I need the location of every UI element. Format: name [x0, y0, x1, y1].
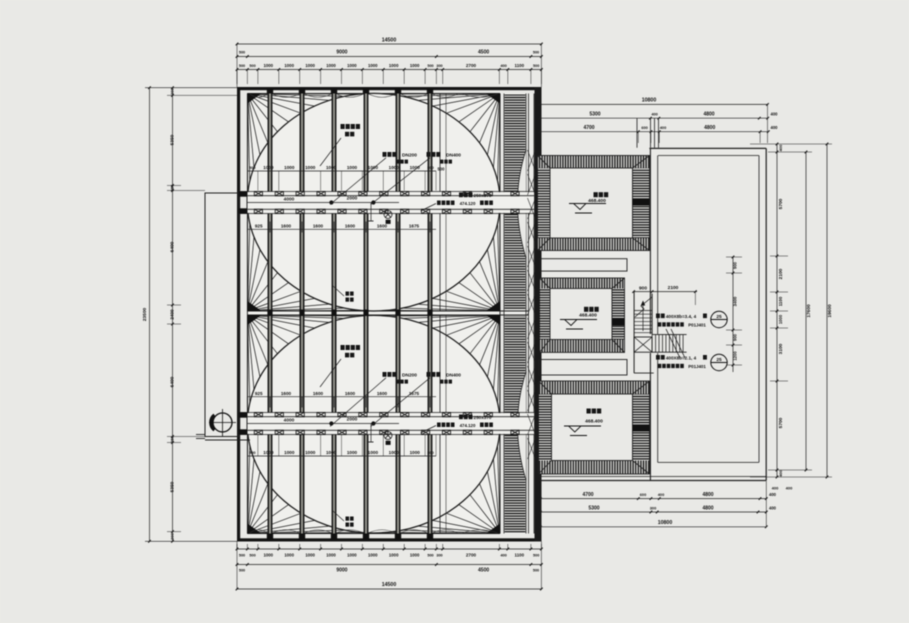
svg-text:1100: 1100 — [515, 553, 525, 558]
svg-text:2700: 2700 — [466, 553, 477, 558]
svg-text:4800: 4800 — [703, 112, 714, 118]
svg-text:5700: 5700 — [778, 198, 784, 209]
svg-text:1000: 1000 — [284, 63, 294, 68]
svg-text:400: 400 — [771, 112, 779, 117]
svg-text:400: 400 — [771, 125, 779, 130]
svg-text:1000: 1000 — [305, 450, 316, 455]
svg-text:900: 900 — [733, 261, 738, 269]
svg-text:500: 500 — [239, 569, 245, 573]
svg-text:500: 500 — [249, 450, 256, 455]
svg-text:5300: 5300 — [589, 112, 600, 118]
svg-text:1000: 1000 — [326, 63, 336, 68]
svg-text:468.400: 468.400 — [585, 419, 603, 425]
svg-text:1000: 1000 — [368, 553, 378, 558]
svg-text:DN200: DN200 — [402, 153, 417, 159]
svg-text:1600: 1600 — [313, 223, 324, 228]
svg-text:1000: 1000 — [284, 450, 295, 455]
svg-text:4800: 4800 — [704, 125, 715, 131]
svg-text:1000: 1000 — [389, 450, 400, 455]
svg-text:2100: 2100 — [668, 285, 679, 291]
svg-text:925: 925 — [255, 223, 263, 228]
svg-text:1000: 1000 — [347, 165, 358, 170]
svg-text:2700: 2700 — [466, 63, 477, 68]
svg-text:900: 900 — [639, 285, 647, 291]
svg-text:DN400: DN400 — [446, 373, 461, 379]
svg-text:DN400: DN400 — [446, 153, 461, 159]
svg-text:1000: 1000 — [410, 450, 421, 455]
svg-text:1600: 1600 — [377, 391, 388, 396]
svg-text:400: 400 — [500, 553, 507, 558]
svg-text:P01J401: P01J401 — [688, 322, 706, 327]
svg-text:3100: 3100 — [778, 343, 784, 354]
svg-text:1000: 1000 — [389, 553, 399, 558]
svg-text:1000: 1000 — [326, 553, 336, 558]
svg-text:1000: 1000 — [326, 450, 337, 455]
svg-text:500: 500 — [533, 64, 539, 68]
svg-text:400: 400 — [500, 63, 507, 68]
svg-text:400: 400 — [769, 492, 777, 497]
svg-text:25: 25 — [716, 314, 722, 320]
svg-text:2000: 2000 — [347, 417, 358, 423]
svg-text:1000: 1000 — [368, 450, 379, 455]
svg-text:400: 400 — [651, 112, 658, 117]
svg-text:500: 500 — [249, 554, 255, 558]
svg-text:250x370: 250x370 — [474, 415, 492, 420]
svg-text:200: 200 — [170, 87, 175, 94]
svg-text:500: 500 — [239, 554, 245, 558]
svg-text:500: 500 — [533, 569, 539, 573]
svg-text:500: 500 — [249, 165, 256, 170]
svg-text:925: 925 — [255, 391, 263, 396]
svg-text:1000: 1000 — [284, 165, 295, 170]
svg-text:500: 500 — [239, 64, 245, 68]
svg-text:200: 200 — [170, 532, 175, 539]
svg-text:1600: 1600 — [281, 223, 292, 228]
svg-text:1675: 1675 — [409, 223, 420, 228]
svg-text:500: 500 — [427, 64, 433, 68]
svg-text:500: 500 — [427, 165, 434, 170]
svg-text:4700: 4700 — [582, 492, 593, 498]
svg-text:500: 500 — [249, 64, 255, 68]
svg-text:23500: 23500 — [142, 308, 148, 322]
svg-text:250x370: 250x370 — [474, 193, 492, 198]
svg-text:400: 400 — [778, 144, 783, 151]
svg-text:4800: 4800 — [702, 492, 713, 498]
svg-text:1000: 1000 — [389, 165, 400, 170]
svg-text:1000: 1000 — [264, 553, 274, 558]
svg-text:1000: 1000 — [778, 314, 783, 324]
svg-text:1000: 1000 — [389, 63, 399, 68]
svg-text:500: 500 — [438, 167, 446, 172]
svg-text:1000: 1000 — [347, 450, 358, 455]
svg-text:500: 500 — [533, 554, 539, 558]
svg-text:400: 400 — [769, 506, 777, 511]
svg-text:1000: 1000 — [305, 165, 316, 170]
svg-text:600: 600 — [641, 125, 648, 130]
svg-text:500: 500 — [533, 51, 539, 55]
svg-text:900: 900 — [733, 333, 738, 341]
svg-text:17600: 17600 — [806, 304, 812, 318]
svg-text:3400: 3400 — [733, 296, 738, 306]
svg-text:468.400: 468.400 — [579, 313, 597, 319]
svg-text:400: 400 — [772, 486, 779, 491]
svg-text:500: 500 — [427, 450, 434, 455]
svg-text:468.400: 468.400 — [588, 198, 606, 204]
svg-text:250: 250 — [170, 184, 175, 191]
svg-text:300: 300 — [436, 64, 442, 68]
svg-text:1100: 1100 — [515, 63, 525, 68]
svg-text:1000: 1000 — [368, 63, 378, 68]
svg-text:4000: 4000 — [284, 196, 295, 202]
svg-text:1600: 1600 — [377, 223, 388, 228]
svg-text:4500: 4500 — [478, 568, 489, 574]
svg-text:400: 400 — [786, 486, 793, 491]
svg-text:19600: 19600 — [827, 304, 833, 318]
svg-text:1000: 1000 — [410, 63, 420, 68]
svg-text:1000: 1000 — [263, 165, 274, 170]
svg-text:1000: 1000 — [326, 165, 337, 170]
svg-text:400: 400 — [660, 125, 667, 130]
svg-text:4800: 4800 — [702, 506, 713, 512]
svg-text:300: 300 — [436, 554, 442, 558]
svg-text:5350: 5350 — [170, 134, 176, 145]
svg-text:10800: 10800 — [642, 98, 657, 104]
svg-text:500: 500 — [427, 554, 433, 558]
svg-text:6400: 6400 — [170, 376, 176, 387]
svg-text:P01J401: P01J401 — [688, 364, 706, 369]
svg-text:400X8b=2.1, 4: 400X8b=2.1, 4 — [666, 355, 697, 360]
svg-text:4500: 4500 — [478, 50, 489, 56]
svg-text:4700: 4700 — [583, 125, 594, 131]
svg-text:9000: 9000 — [336, 50, 347, 56]
svg-text:2100: 2100 — [778, 268, 784, 279]
svg-text:5350: 5350 — [170, 481, 176, 492]
svg-text:1000: 1000 — [263, 450, 274, 455]
svg-text:474.120: 474.120 — [460, 201, 476, 206]
svg-text:10800: 10800 — [658, 520, 673, 526]
svg-text:14500: 14500 — [382, 582, 397, 588]
svg-text:DN200: DN200 — [402, 373, 417, 379]
svg-text:474.120: 474.120 — [460, 423, 476, 428]
svg-text:1200: 1200 — [733, 351, 738, 361]
svg-text:2400: 2400 — [170, 309, 175, 320]
svg-text:2000: 2000 — [347, 196, 358, 202]
svg-text:1000: 1000 — [305, 63, 315, 68]
svg-text:1000: 1000 — [347, 553, 357, 558]
svg-text:300: 300 — [650, 506, 657, 511]
svg-text:400X8b=3.4, 4: 400X8b=3.4, 4 — [666, 314, 697, 319]
svg-text:1000: 1000 — [284, 553, 294, 558]
svg-text:1000: 1000 — [410, 553, 420, 558]
svg-text:1000: 1000 — [264, 63, 274, 68]
svg-text:1100: 1100 — [778, 296, 783, 306]
svg-text:4000: 4000 — [284, 417, 295, 423]
svg-text:25: 25 — [716, 357, 722, 363]
svg-text:1600: 1600 — [345, 391, 356, 396]
svg-text:1600: 1600 — [345, 223, 356, 228]
svg-text:6400: 6400 — [170, 241, 176, 252]
svg-text:1600: 1600 — [313, 391, 324, 396]
svg-text:5700: 5700 — [778, 417, 784, 428]
svg-text:1000: 1000 — [305, 553, 315, 558]
svg-text:1000: 1000 — [347, 63, 357, 68]
svg-text:400: 400 — [658, 492, 665, 497]
svg-text:400: 400 — [778, 469, 783, 476]
svg-text:5300: 5300 — [588, 506, 599, 512]
svg-text:14500: 14500 — [382, 38, 397, 44]
svg-text:500: 500 — [239, 51, 245, 55]
svg-text:9000: 9000 — [336, 568, 347, 574]
svg-text:1675: 1675 — [409, 391, 420, 396]
svg-text:1600: 1600 — [281, 391, 292, 396]
svg-text:600: 600 — [640, 492, 647, 497]
